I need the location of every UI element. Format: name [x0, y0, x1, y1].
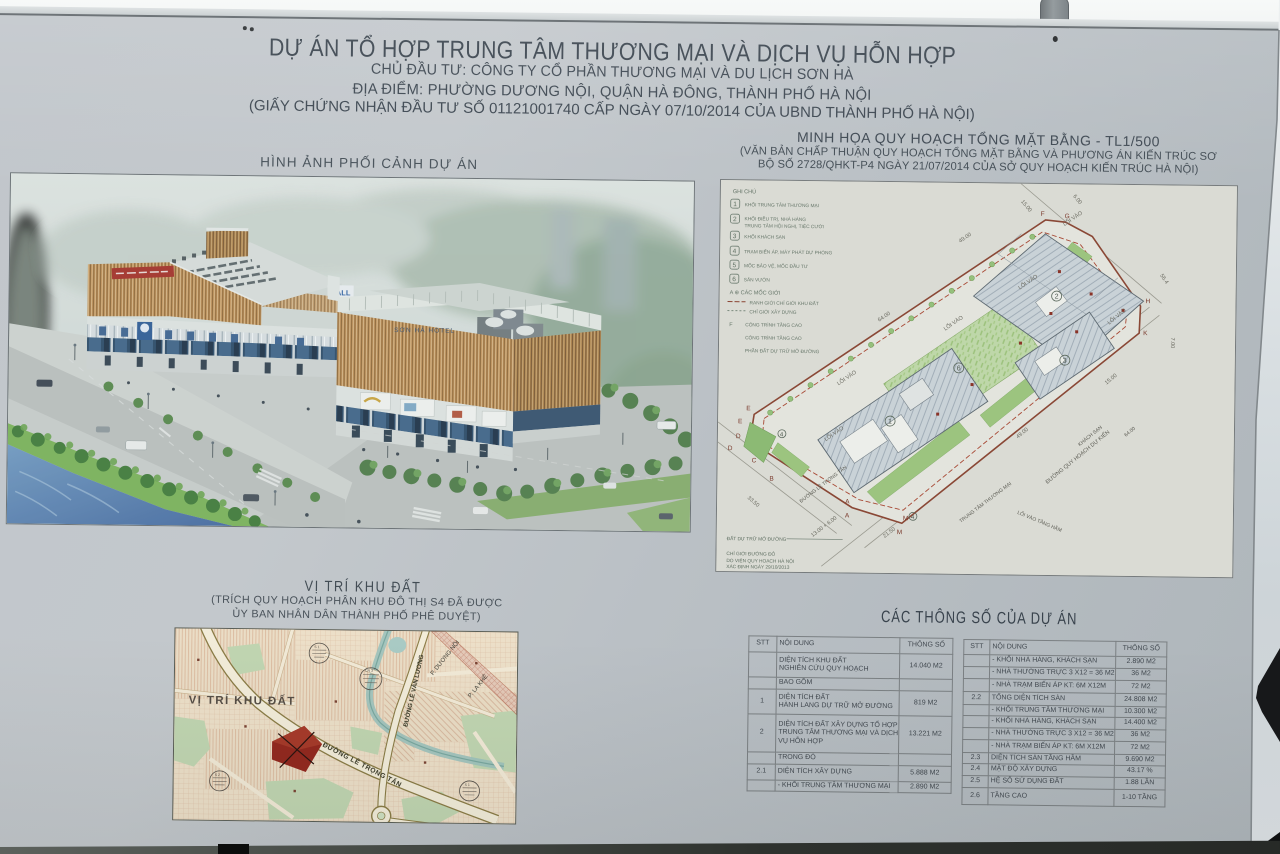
svg-text:2: 2 — [1055, 294, 1059, 301]
svg-text:D: D — [728, 445, 733, 452]
svg-text:VỊ TRÍ KHU ĐẤT: VỊ TRÍ KHU ĐẤT — [189, 694, 296, 708]
svg-text:2: 2 — [733, 216, 737, 223]
svg-text:4: 4 — [733, 248, 737, 255]
svg-text:K: K — [1143, 330, 1148, 337]
svg-text:E: E — [738, 418, 743, 425]
svg-text:H: H — [1146, 298, 1151, 305]
svg-text:S 2: S 2 — [215, 773, 220, 777]
svg-text:S 1: S 1 — [465, 783, 470, 787]
svg-text:7.00: 7.00 — [1169, 337, 1175, 348]
svg-text:S 1: S 1 — [314, 645, 319, 649]
svg-text:A: A — [845, 499, 850, 506]
svg-text:1: 1 — [733, 201, 737, 208]
svg-text:B: B — [769, 476, 773, 483]
svg-text:C: C — [752, 457, 757, 464]
svg-text:F: F — [1041, 211, 1045, 218]
svg-text:D: D — [736, 433, 741, 440]
svg-text:5: 5 — [732, 262, 736, 269]
svg-text:CN 3: CN 3 — [365, 669, 373, 673]
svg-text:6: 6 — [957, 365, 961, 372]
svg-text:M: M — [903, 515, 909, 522]
svg-text:3: 3 — [1063, 358, 1067, 365]
svg-text:6: 6 — [732, 276, 736, 283]
svg-text:E: E — [746, 405, 751, 412]
svg-text:A ⊕ CÁC MỐC GIỚI: A ⊕ CÁC MỐC GIỚI — [730, 289, 781, 297]
svg-text:GHI CHÚ: GHI CHÚ — [733, 188, 756, 195]
svg-text:1: 1 — [888, 419, 892, 426]
svg-text:A: A — [845, 513, 850, 520]
svg-text:M: M — [897, 529, 903, 536]
svg-text:3: 3 — [733, 233, 737, 240]
